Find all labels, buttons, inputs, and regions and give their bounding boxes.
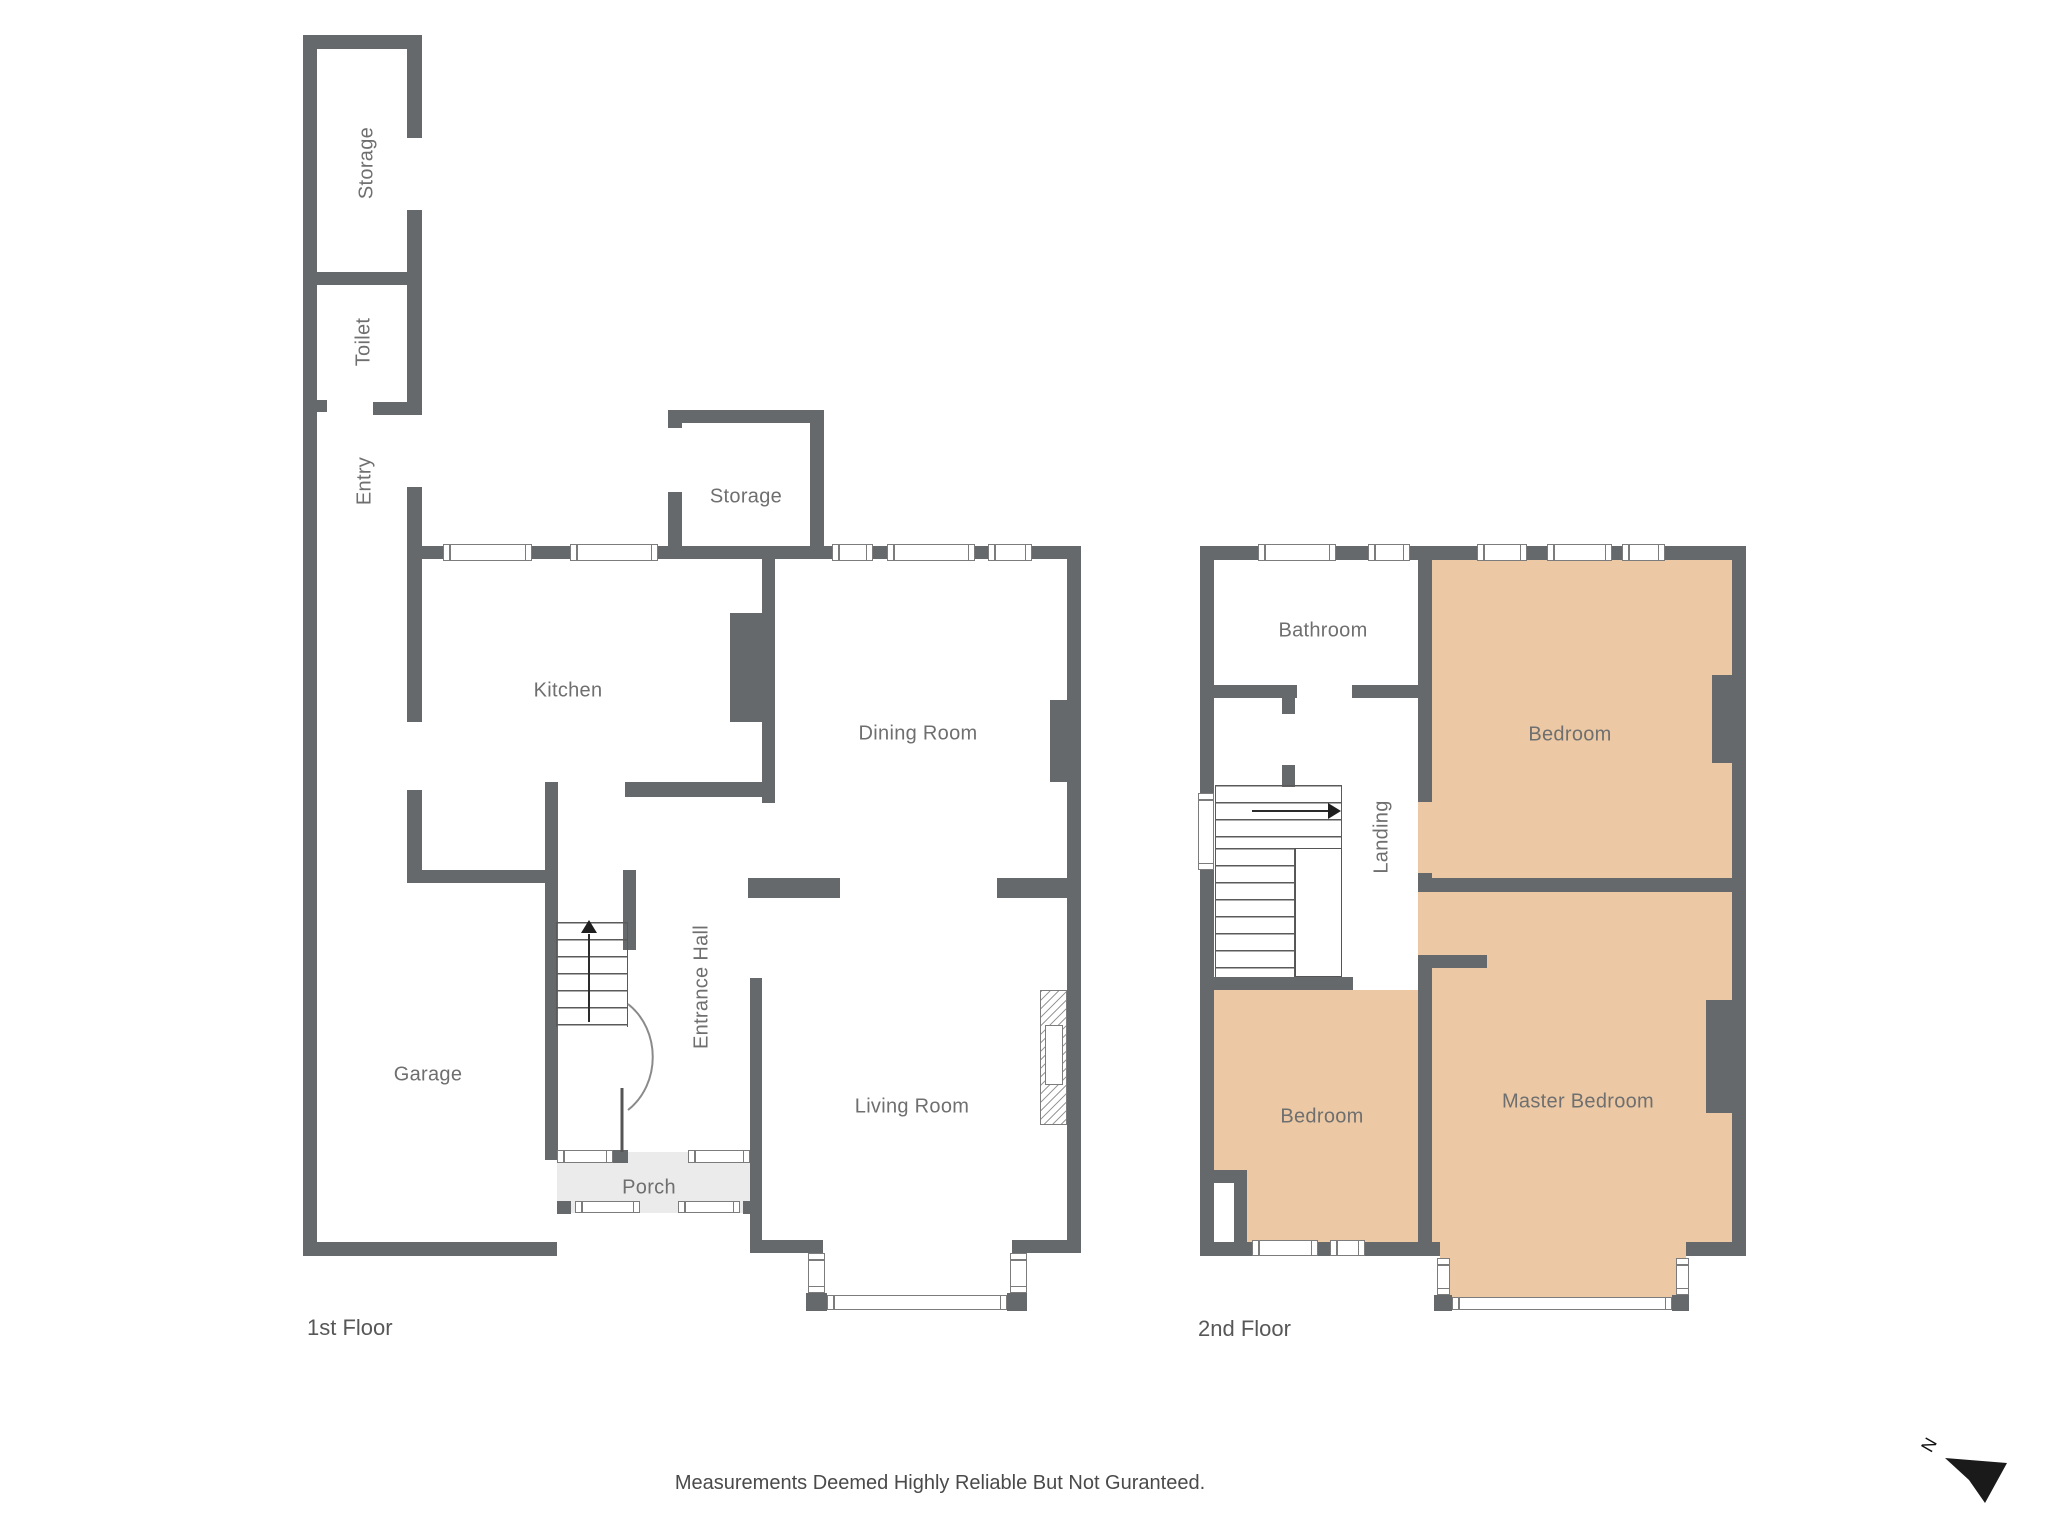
bay-window bbox=[1010, 1253, 1027, 1293]
room-label-bedroom-front: Bedroom bbox=[1528, 724, 1611, 747]
stairs-direction-line bbox=[1252, 810, 1330, 812]
wall bbox=[1214, 685, 1297, 698]
room-label-master-bedroom: Master Bedroom bbox=[1502, 1091, 1654, 1114]
room-label-storage-wing: Storage bbox=[356, 127, 379, 199]
room-label-storage: Storage bbox=[710, 486, 782, 509]
wall bbox=[1200, 1242, 1440, 1256]
wall bbox=[1282, 765, 1295, 787]
window bbox=[887, 544, 975, 561]
bay-window bbox=[1676, 1258, 1689, 1295]
room-label-entry: Entry bbox=[354, 457, 377, 505]
stairs-up-arrow-icon bbox=[1328, 803, 1341, 819]
window bbox=[1547, 544, 1612, 561]
chimney-breast bbox=[1706, 1000, 1732, 1113]
wall bbox=[1213, 977, 1353, 990]
bay-window bbox=[1437, 1258, 1450, 1295]
room-label-living-room: Living Room bbox=[855, 1096, 969, 1119]
bay-window bbox=[808, 1253, 825, 1293]
window bbox=[1252, 1240, 1318, 1256]
window bbox=[575, 1201, 640, 1213]
window bbox=[1477, 544, 1527, 561]
wall bbox=[1234, 1183, 1247, 1242]
floor-void bbox=[1214, 1183, 1234, 1242]
wall bbox=[1432, 955, 1487, 968]
wall bbox=[1200, 546, 1214, 1256]
wall bbox=[1732, 546, 1746, 1256]
window bbox=[1198, 793, 1214, 870]
window bbox=[1368, 544, 1410, 561]
window bbox=[688, 1150, 750, 1163]
room-label-bathroom: Bathroom bbox=[1278, 620, 1367, 643]
window bbox=[1330, 1240, 1365, 1256]
room-label-entrance-hall: Entrance Hall bbox=[691, 925, 714, 1049]
room-label-landing: Landing bbox=[1371, 800, 1394, 873]
wall bbox=[1418, 560, 1432, 802]
wall bbox=[1282, 698, 1295, 714]
bay-corner bbox=[1434, 1295, 1452, 1311]
room-label-dining-room: Dining Room bbox=[859, 723, 978, 746]
wall bbox=[1352, 685, 1432, 698]
bay-corner bbox=[1672, 1295, 1689, 1311]
window bbox=[1258, 544, 1336, 561]
bay-window bbox=[827, 1295, 1007, 1310]
wall bbox=[1418, 955, 1432, 1242]
window bbox=[1622, 544, 1665, 561]
room-label-garage: Garage bbox=[394, 1064, 463, 1087]
compass-north-label: N bbox=[1917, 1434, 1941, 1455]
window bbox=[443, 544, 532, 561]
bay-window bbox=[1452, 1297, 1672, 1310]
stairs bbox=[1215, 785, 1342, 848]
window bbox=[557, 1150, 613, 1163]
window bbox=[988, 544, 1032, 561]
room-label-kitchen: Kitchen bbox=[534, 680, 603, 703]
room-label-porch: Porch bbox=[622, 1177, 676, 1200]
window bbox=[570, 544, 658, 561]
floor1-title: 1st Floor bbox=[307, 1315, 393, 1341]
north-arrow-icon: N bbox=[1880, 1395, 2020, 1525]
room-label-toilet: Toilet bbox=[353, 318, 376, 367]
chimney-breast bbox=[1712, 675, 1732, 763]
floorplan-canvas: Storage Toilet Entry Kitchen Storage Din… bbox=[0, 0, 2048, 1536]
window bbox=[678, 1201, 740, 1213]
wall bbox=[1214, 1170, 1247, 1183]
wall bbox=[1686, 1242, 1746, 1256]
stairs bbox=[1215, 848, 1295, 977]
disclaimer-text: Measurements Deemed Highly Reliable But … bbox=[540, 1472, 1340, 1495]
stairwell bbox=[1295, 848, 1342, 977]
wall bbox=[1418, 878, 1746, 892]
window bbox=[832, 544, 873, 561]
room-label-bedroom-back: Bedroom bbox=[1280, 1106, 1363, 1129]
floor2-title: 2nd Floor bbox=[1198, 1316, 1291, 1342]
